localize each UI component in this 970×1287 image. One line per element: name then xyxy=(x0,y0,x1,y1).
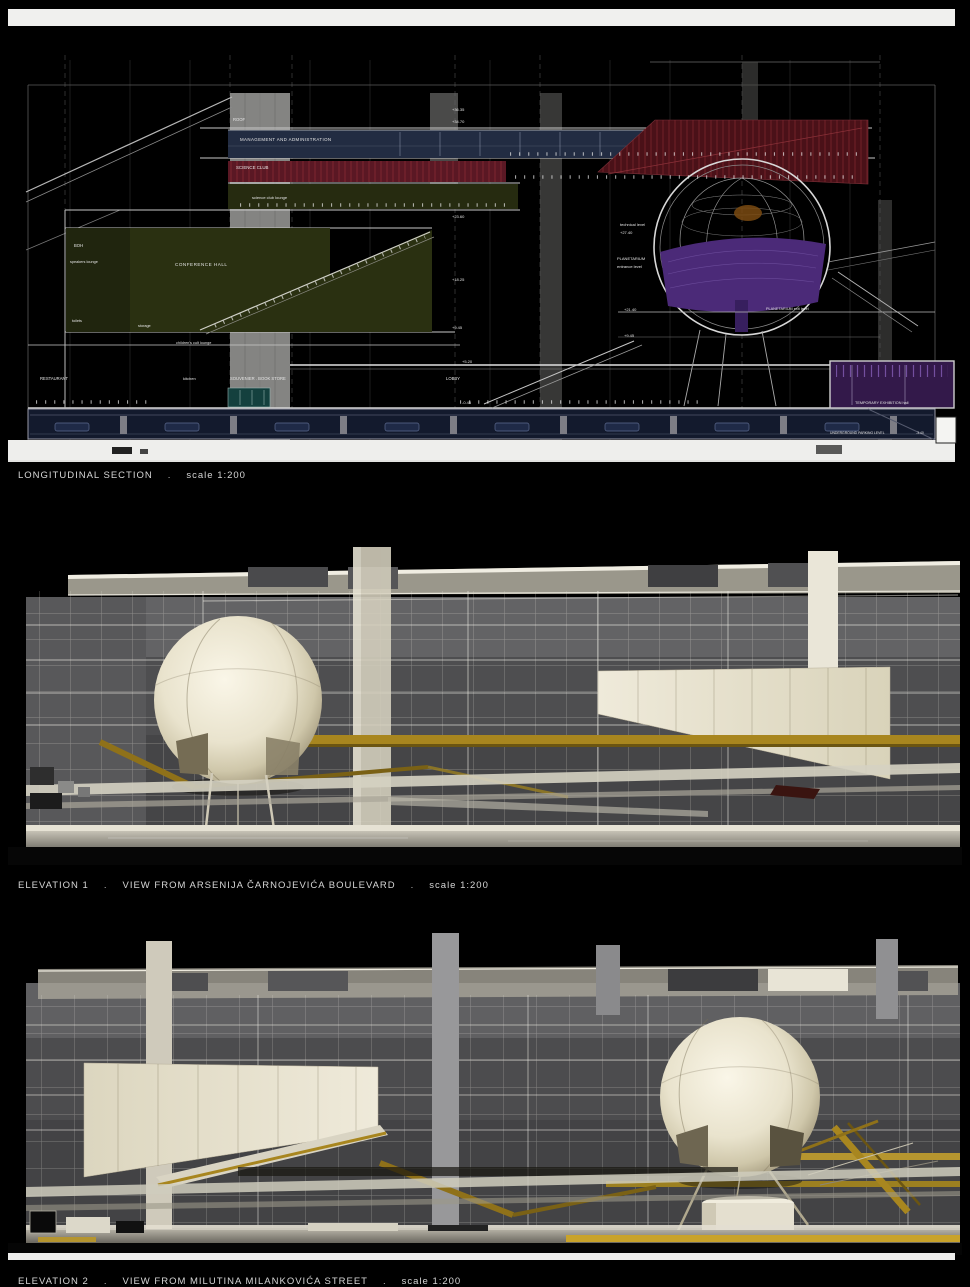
level-23-60: +23.60 xyxy=(452,214,465,219)
label-childrens-lounge: children's cult lounge xyxy=(176,341,211,345)
edge-white-tag xyxy=(936,417,956,443)
level-9-45-planetarium: +9.45 xyxy=(624,333,635,338)
label-souvenir-book-store: SOUVENIER . BOOK STORE xyxy=(230,376,286,381)
bottom-white-strip xyxy=(8,1253,955,1260)
elevation1-caption-scale: scale 1:200 xyxy=(429,880,489,891)
caption-dot: . xyxy=(104,1276,108,1287)
section-caption-title: LONGITUDINAL SECTION xyxy=(18,470,153,481)
roof-ramp-lines xyxy=(26,97,232,250)
label-storage: storage xyxy=(138,324,151,328)
label-toilets: toilets xyxy=(72,319,82,323)
zone-temporary-exhibition: TEMPORARY EXHIBITION hall xyxy=(830,361,954,408)
label-planetarium: PLANETARIUM xyxy=(617,256,645,261)
label-boh: BOH xyxy=(74,243,83,248)
elevation2-caption: ELEVATION 2 . VIEW FROM MILUTINA MILANKO… xyxy=(18,1276,461,1287)
section-caption-scale: scale 1:200 xyxy=(186,470,246,481)
elevation1-caption-view: VIEW FROM ARSENIJA ČARNOJEVIĆA BOULEVARD xyxy=(122,880,395,891)
level-minus-0-45: -0.45 xyxy=(462,400,472,405)
elevation2-caption-view: VIEW FROM MILUTINA MILANKOVIĆA STREET xyxy=(122,1276,368,1287)
level-9-45: +9.45 xyxy=(452,325,463,330)
label-speakers-lounge: speakers lounge xyxy=(70,260,98,264)
elevation1-render xyxy=(8,535,962,865)
label-science-club: SCIENCE CLUB xyxy=(236,165,269,170)
longitudinal-section-drawing: MANAGEMENT AND ADMINISTRATION SCIENCE CL… xyxy=(0,0,970,470)
caption-dot: . xyxy=(168,470,172,481)
presentation-board: MANAGEMENT AND ADMINISTRATION SCIENCE CL… xyxy=(0,0,970,1284)
caption-dot: . xyxy=(383,1276,387,1287)
zone-science-club-lounge: science club lounge xyxy=(228,184,518,209)
section-caption: LONGITUDINAL SECTION . scale 1:200 xyxy=(18,470,246,481)
zone-conference-hall: BOH speakers lounge CONFERENCE HALL toil… xyxy=(66,228,434,334)
elevation1-caption: ELEVATION 1 . VIEW FROM ARSENIJA ČARNOJE… xyxy=(18,880,489,891)
elevation2-caption-title: ELEVATION 2 xyxy=(18,1276,89,1287)
label-technical-level: technical level xyxy=(620,222,645,227)
elevation2-caption-scale: scale 1:200 xyxy=(402,1276,462,1287)
caption-dot: . xyxy=(104,880,108,891)
label-kitchen: kitchen xyxy=(183,376,196,381)
service-tower-left xyxy=(353,547,391,837)
elevation1-caption-title: ELEVATION 1 xyxy=(18,880,89,891)
underground-parking: UNDERGROUND PARKING LEVEL -3.40 xyxy=(28,409,935,440)
level-34-70: +34.70 xyxy=(452,119,465,124)
label-entrance-level: entrance level xyxy=(617,264,642,269)
dome-projector-glow xyxy=(734,205,762,221)
page-top-strip xyxy=(8,9,955,26)
label-science-club-lounge: science club lounge xyxy=(252,195,288,200)
label-management: MANAGEMENT AND ADMINISTRATION xyxy=(240,137,331,142)
level-36-35: +36.35 xyxy=(452,107,465,112)
level-21-40: +21.40 xyxy=(624,307,637,312)
service-tower-right xyxy=(808,551,838,681)
label-planetarium-exit: PLANETARIUM exit level xyxy=(766,307,809,311)
ground-plane xyxy=(8,825,962,865)
label-lobby: LOBBY xyxy=(446,376,460,381)
level-27-40: +27.40 xyxy=(620,230,633,235)
caption-dot: . xyxy=(411,880,415,891)
level-minus-3-40: -3.40 xyxy=(916,431,924,435)
roof-band xyxy=(38,965,958,999)
zone-science-club: SCIENCE CLUB xyxy=(228,161,506,182)
label-conference-hall: CONFERENCE HALL xyxy=(175,262,227,267)
label-temporary-exhibition: TEMPORARY EXHIBITION hall xyxy=(855,401,909,405)
label-restaurant: RESTAURANT xyxy=(40,376,69,381)
elevation2-render xyxy=(8,925,962,1255)
label-underground-parking: UNDERGROUND PARKING LEVEL xyxy=(830,431,885,435)
level-18-25: +18.25 xyxy=(452,277,465,282)
label-roof: ROOF xyxy=(233,117,246,122)
level-5-20: +5.20 xyxy=(462,359,473,364)
